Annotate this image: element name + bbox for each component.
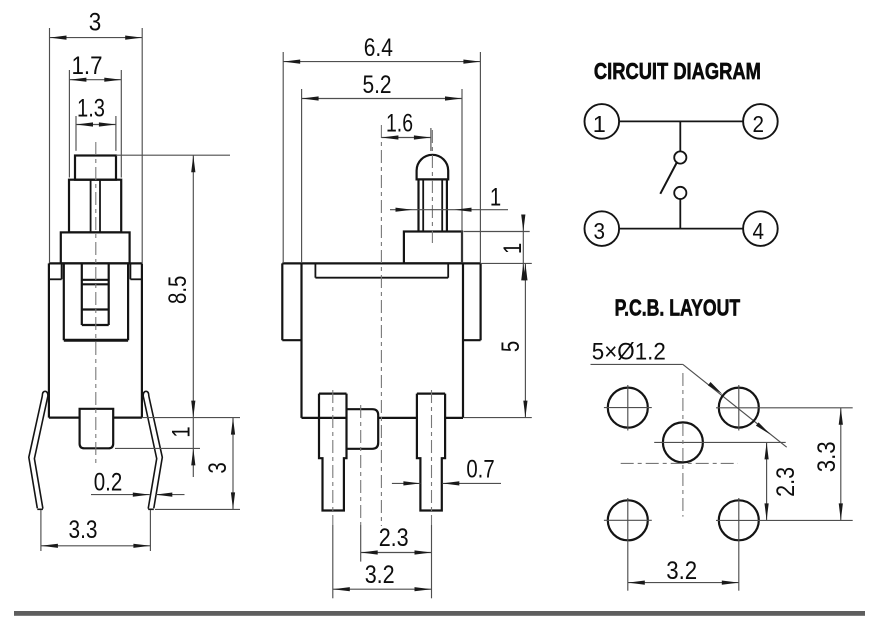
svg-text:CIRCUIT DIAGRAM: CIRCUIT DIAGRAM: [594, 58, 761, 84]
svg-text:3.3: 3.3: [69, 516, 98, 544]
svg-text:8.5: 8.5: [164, 276, 192, 304]
svg-text:2.3: 2.3: [772, 467, 800, 497]
svg-text:3: 3: [204, 462, 232, 473]
svg-text:5×Ø1.2: 5×Ø1.2: [592, 339, 666, 366]
svg-text:4: 4: [752, 218, 764, 244]
svg-text:1: 1: [593, 111, 606, 137]
svg-text:3.2: 3.2: [365, 561, 395, 589]
svg-text:P.C.B. LAYOUT: P.C.B. LAYOUT: [615, 295, 741, 321]
svg-text:1.7: 1.7: [72, 52, 103, 80]
svg-text:2.3: 2.3: [379, 524, 409, 552]
svg-text:3.3: 3.3: [813, 441, 841, 472]
svg-text:1: 1: [499, 243, 527, 254]
svg-text:3: 3: [89, 9, 102, 37]
svg-text:5.2: 5.2: [362, 71, 391, 99]
svg-text:0.2: 0.2: [94, 469, 123, 497]
svg-text:1.6: 1.6: [386, 109, 413, 137]
svg-text:3.2: 3.2: [666, 557, 697, 585]
svg-text:6.4: 6.4: [364, 34, 393, 62]
svg-text:1: 1: [168, 426, 196, 437]
svg-text:1: 1: [490, 184, 501, 212]
svg-text:5: 5: [497, 341, 525, 352]
svg-text:1.3: 1.3: [77, 95, 105, 123]
svg-text:2: 2: [752, 111, 764, 137]
svg-text:3: 3: [594, 218, 606, 244]
svg-text:0.7: 0.7: [466, 456, 494, 484]
